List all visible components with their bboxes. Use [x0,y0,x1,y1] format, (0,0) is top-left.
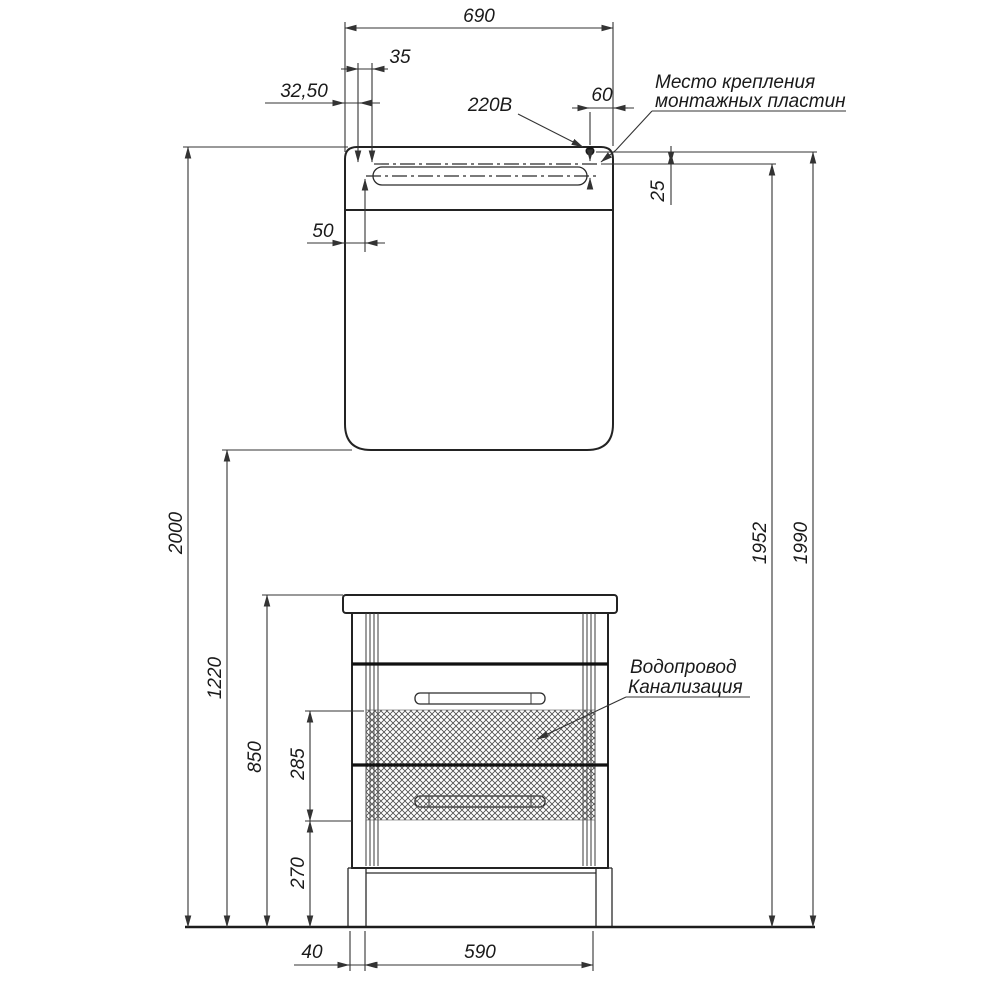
power-point-dot [586,147,595,156]
svg-text:60: 60 [591,85,613,106]
svg-text:1220: 1220 [205,656,226,699]
mirror-group [345,147,613,451]
dim-cabinet-width: 590 [365,942,593,965]
mirror-outline [345,147,613,450]
dim-mirror-width: 690 [345,6,613,152]
dim-utility-zone-bottom: 270 [288,821,310,927]
countertop [343,595,617,613]
dim-plate-mount-height: 1952 [750,164,772,927]
svg-text:850: 850 [245,741,266,773]
dim-plate-offset-right: 60 [572,85,634,145]
mounting-plates-note: Место крепления монтажных пластин [601,72,846,162]
svg-text:40: 40 [301,942,323,963]
svg-text:Канализация: Канализация [628,677,743,698]
dim-plate-spacing: 35 [341,47,411,162]
svg-text:35: 35 [389,47,411,68]
svg-text:590: 590 [464,942,496,963]
plinth-and-legs [348,868,612,927]
svg-text:285: 285 [288,748,309,781]
svg-text:Водопровод: Водопровод [630,657,736,678]
svg-text:50: 50 [312,221,334,242]
svg-text:1952: 1952 [750,521,771,564]
svg-text:690: 690 [463,6,495,27]
svg-text:1990: 1990 [791,521,812,564]
svg-text:270: 270 [288,857,309,890]
svg-text:32,50: 32,50 [280,81,328,102]
svg-text:25: 25 [648,180,669,203]
svg-text:2000: 2000 [166,511,187,555]
vanity-group [185,595,815,927]
power-label: 220В [467,95,513,116]
dim-mirror-top-height: 1990 [791,152,813,927]
dim-mirror-bottom-height: 1220 [205,450,352,927]
technical-drawing: 690 35 32,50 50 [0,0,1000,1000]
dimensions-group: 690 35 32,50 50 [166,6,817,971]
drawer-handle-top [415,693,545,704]
svg-text:Место крепления: Место крепления [655,72,815,93]
drawing-sheet: 690 35 32,50 50 [0,0,1000,1000]
dim-plate-offset-left: 32,50 [265,81,380,103]
svg-text:монтажных пластин: монтажных пластин [655,91,846,112]
power-callout: 220В [467,95,583,147]
dim-plate-below-top: 25 [590,146,817,205]
dim-total-height: 2000 [166,147,348,927]
